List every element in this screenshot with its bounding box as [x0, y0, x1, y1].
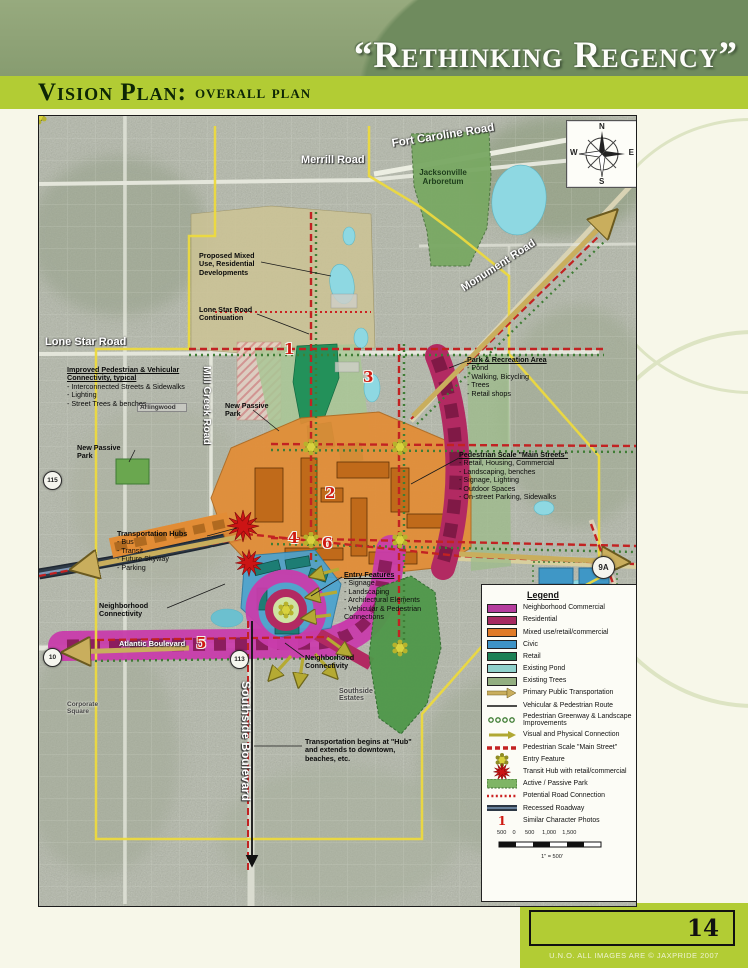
callout-title-neighborhood-connectivity-south: Neighborhood Connectivity [305, 653, 354, 670]
legend-item-existing-trees: Existing Trees [487, 676, 632, 686]
legend-item-pedestrian-greenway-landscape-improvements: Pedestrian Greenway & Landscape Improvem… [487, 713, 632, 728]
legend-swatch-solid-icon [487, 640, 517, 650]
callout-item-park-recreation-area-3: - Retail shops [467, 390, 579, 398]
place-label-corporate-square: Corporate Square [67, 701, 113, 715]
compass-w: W [570, 148, 578, 157]
map-legend: Legend Neighborhood CommercialResidentia… [481, 584, 637, 902]
place-label-southside-estates: Southside Estates [339, 688, 391, 702]
section-header-bar: Vision Plan: overall plan [0, 76, 748, 109]
legend-label-similar-character-photos: Similar Character Photos [523, 817, 600, 825]
photo-marker-2[interactable]: 2 [325, 484, 335, 502]
legend-item-neighborhood-commercial: Neighborhood Commercial [487, 603, 632, 613]
photo-marker-5[interactable]: 5 [196, 634, 206, 652]
legend-swatch-solid-icon [487, 615, 517, 625]
scale-note: 1" = 500' [497, 854, 607, 860]
legend-label-recessed-roadway: Recessed Roadway [523, 805, 584, 813]
legend-label-vehicular-pedestrian-route: Vehicular & Pedestrian Route [523, 702, 613, 710]
photo-marker-6[interactable]: 6 [322, 534, 332, 552]
legend-item-mixed-use-retail-commercial: Mixed use/retail/commercial [487, 627, 632, 637]
callout-neighborhood-connectivity-west: Neighborhood Connectivity [99, 602, 165, 619]
legend-label-existing-pond: Existing Pond [523, 665, 565, 673]
compass-s: S [599, 177, 604, 186]
callout-proposed-development: Proposed Mixed Use, Residential Developm… [199, 252, 261, 277]
callout-item-entry-features-4: Connections [344, 613, 452, 621]
legend-item-active-passive-park: Active / Passive Park [487, 779, 632, 789]
legend-item-transit-hub-with-retail-commercial: Transit Hub with retail/commercial [487, 767, 632, 777]
route-shield-115: 115 [43, 471, 62, 490]
callout-neighborhood-connectivity-south: Neighborhood Connectivity [305, 654, 371, 671]
legend-label-neighborhood-commercial: Neighborhood Commercial [523, 604, 605, 612]
legend-numeral: 1 [498, 814, 506, 828]
legend-item-vehicular-pedestrian-route: Vehicular & Pedestrian Route [487, 701, 632, 711]
legend-label-entry-feature: Entry Feature [523, 756, 565, 764]
legend-swatch-solid-icon [487, 603, 517, 613]
legend-item-civic: Civic [487, 640, 632, 650]
callout-item-pedestrian-main-streets-4: - On-street Parking, Sidewalks [459, 493, 591, 501]
callout-new-passive-park-west: New Passive Park [77, 444, 133, 461]
callout-title-new-passive-park-center: New Passive Park [225, 401, 269, 418]
callout-title-improved-connectivity: Improved Pedestrian & Vehicular Connecti… [67, 365, 179, 382]
legend-swatch-yellow-arrow-icon [487, 730, 517, 740]
page-banner: “Rethinking Regency” [0, 0, 748, 76]
legend-swatch-red-dash-icon [487, 743, 517, 753]
legend-label-retail: Retail [523, 653, 541, 661]
legend-swatch-park-icon [487, 779, 517, 789]
page-number-box: 14 [529, 910, 735, 946]
callout-title-neighborhood-connectivity-west: Neighborhood Connectivity [99, 601, 148, 618]
legend-label-active-passive-park: Active / Passive Park [523, 780, 588, 788]
legend-label-transit-hub-with-retail-commercial: Transit Hub with retail/commercial [523, 768, 627, 776]
legend-label-visual-and-physical-connection: Visual and Physical Connection [523, 731, 619, 739]
legend-item-primary-public-transportation: Primary Public Transportation [487, 688, 632, 698]
callout-title-lone-star-continuation: Lone Star Road Continuation [199, 305, 252, 322]
legend-swatch-red-dots-icon [487, 791, 517, 801]
legend-title: Legend [527, 590, 632, 600]
legend-swatch-solid-icon [487, 627, 517, 637]
section-subtitle: overall plan [195, 82, 311, 103]
footer-block: 14 U.N.O. ALL IMAGES ARE © JAXPRIDE 2007 [520, 903, 748, 968]
callout-pedestrian-main-streets: Pedestrian Scale "Main Streets"- Retail,… [459, 451, 591, 502]
legend-label-primary-public-transportation: Primary Public Transportation [523, 689, 613, 697]
callout-park-recreation-area: Park & Recreation Area- Pond- Walking, B… [467, 356, 579, 398]
callout-item-transportation-hubs-3: - Parking [117, 564, 213, 572]
legend-label-pedestrian-scale-main-street: Pedestrian Scale "Main Street" [523, 744, 617, 752]
callout-title-new-passive-park-west: New Passive Park [77, 443, 121, 460]
legend-label-potential-road-connection: Potential Road Connection [523, 792, 605, 800]
scale-ticks: 500 0 500 1,000 1,500 [497, 830, 632, 836]
legend-item-potential-road-connection: Potential Road Connection [487, 791, 632, 801]
scale-bar: 500 0 500 1,000 1,500 1" = 500' [497, 830, 632, 860]
route-shield-10: 10 [43, 648, 62, 667]
legend-item-retail: Retail [487, 652, 632, 662]
section-title: Vision Plan: [38, 79, 187, 107]
legend-item-residential: Residential [487, 615, 632, 625]
legend-swatch-solid-icon [487, 652, 517, 662]
legend-swatch-green-dots-icon [487, 715, 517, 725]
legend-label-civic: Civic [523, 641, 538, 649]
legend-swatch-star-icon [487, 767, 517, 777]
callout-transportation-begins: Transportation begins at "Hub" and exten… [305, 738, 425, 763]
photo-marker-3[interactable]: 3 [363, 368, 373, 386]
compass-rose: N S W E [566, 120, 637, 188]
vision-plan-map[interactable]: N S W E Merrill RoadFort Caroline RoadMo… [38, 115, 637, 907]
legend-swatch-solid-icon [487, 676, 517, 686]
legend-item-existing-pond: Existing Pond [487, 664, 632, 674]
page-number: 14 [687, 915, 719, 942]
legend-item-similar-character-photos: 1Similar Character Photos [487, 816, 632, 826]
route-shield-9A: 9A [592, 556, 615, 579]
route-shield-113: 113 [230, 650, 249, 669]
callout-new-passive-park-center: New Passive Park [225, 402, 281, 419]
legend-swatch-solid-icon [487, 664, 517, 674]
scale-bar-graphic [497, 841, 607, 849]
page-title: “Rethinking Regency” [0, 34, 738, 77]
road-label-southside-boulevard: Southside Boulevard [239, 681, 253, 801]
legend-item-visual-and-physical-connection: Visual and Physical Connection [487, 730, 632, 740]
photo-marker-4[interactable]: 4 [288, 529, 298, 547]
legend-label-existing-trees: Existing Trees [523, 677, 566, 685]
compass-n: N [599, 122, 605, 131]
legend-swatch-tan-arrow-icon [487, 688, 517, 698]
legend-item-recessed-roadway: Recessed Roadway [487, 803, 632, 813]
callout-item-improved-connectivity-2: - Street Trees & benches [67, 400, 203, 408]
callout-entry-features: Entry Features- Signage- Landscaping- Ar… [344, 571, 452, 622]
legend-swatch-recessed-icon [487, 803, 517, 813]
callout-title-proposed-development: Proposed Mixed Use, Residential Developm… [199, 251, 255, 277]
legend-label-residential: Residential [523, 616, 557, 624]
callout-title-transportation-begins: Transportation begins at "Hub" and exten… [305, 737, 412, 763]
legend-label-mixed-use-retail-commercial: Mixed use/retail/commercial [523, 629, 608, 637]
legend-swatch-black-line-icon [487, 701, 517, 711]
photo-marker-1[interactable]: 1 [284, 340, 294, 358]
place-label-jacksonville-arboretum: Jacksonville Arboretum [407, 168, 479, 186]
legend-swatch-numeral-icon: 1 [487, 816, 517, 826]
legend-item-pedestrian-scale-main-street: Pedestrian Scale "Main Street" [487, 743, 632, 753]
road-label-atlantic-boulevard: Atlantic Boulevard [119, 639, 185, 648]
copyright-text: U.N.O. ALL IMAGES ARE © JAXPRIDE 2007 [520, 951, 748, 960]
callout-improved-connectivity: Improved Pedestrian & Vehicular Connecti… [67, 366, 203, 408]
road-label-merrill-road: Merrill Road [301, 154, 365, 166]
legend-label-pedestrian-greenway-landscape-improvements: Pedestrian Greenway & Landscape Improvem… [523, 713, 632, 728]
callout-lone-star-continuation: Lone Star Road Continuation [199, 306, 269, 323]
compass-e: E [629, 148, 634, 157]
callout-transportation-hubs: Transportation Hubs- Bus- Transit- Futur… [117, 530, 213, 572]
road-label-lone-star-road: Lone Star Road [45, 336, 126, 348]
